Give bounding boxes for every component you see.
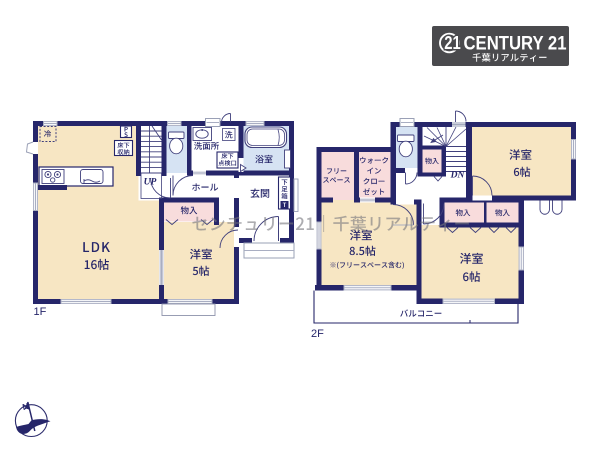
svg-text:1F: 1F — [34, 306, 47, 318]
svg-text:CENTURY 21: CENTURY 21 — [464, 32, 567, 54]
svg-text:DN: DN — [450, 171, 466, 181]
svg-text:UP: UP — [144, 178, 157, 188]
svg-text:2F: 2F — [311, 328, 324, 340]
svg-text:21: 21 — [444, 32, 461, 53]
